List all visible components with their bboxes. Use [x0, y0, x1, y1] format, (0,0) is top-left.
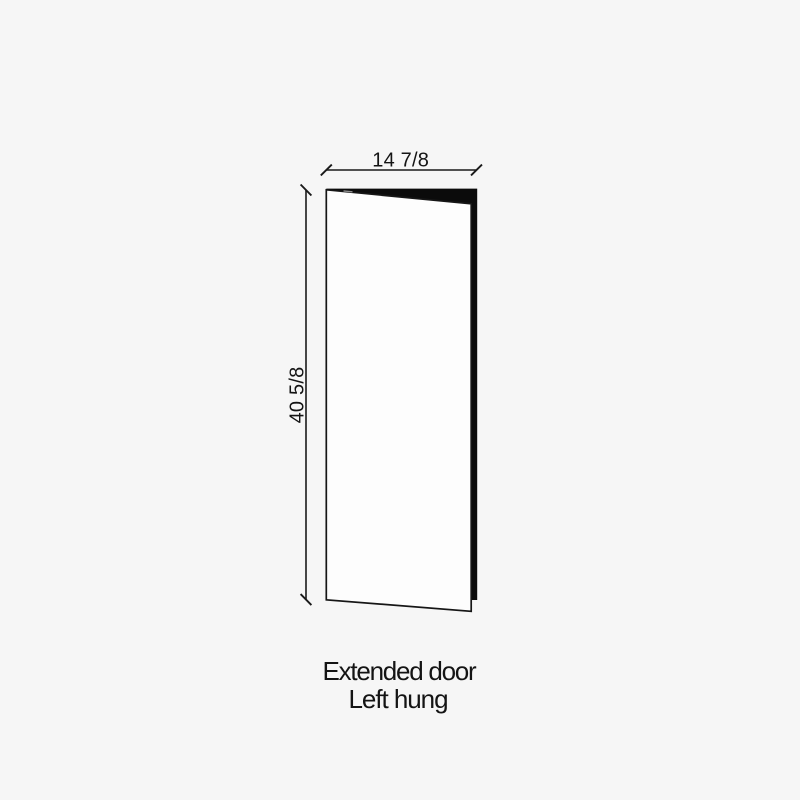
svg-text:14 7/8: 14 7/8 — [372, 150, 429, 172]
svg-text:Left hung: Left hung — [349, 684, 448, 714]
svg-text:Extended door: Extended door — [323, 656, 477, 686]
svg-text:40 5/8: 40 5/8 — [287, 367, 309, 424]
